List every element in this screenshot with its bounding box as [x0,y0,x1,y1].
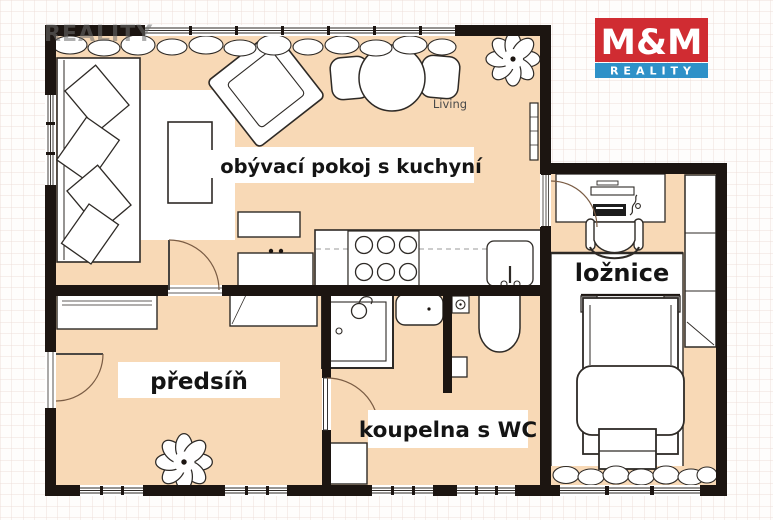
toilet [479,294,520,352]
bedroom-label: ložnice [575,259,670,287]
plant-icon-hall [156,434,213,491]
hallway-label: předsíň [150,369,248,395]
label-living-room: obývací pokoj s kuchyní [220,147,483,183]
floorplan-drawing: obývací pokoj s kuchyní předsíň koupelna… [0,0,773,520]
floorplan-page: obývací pokoj s kuchyní předsíň koupelna… [0,0,773,520]
desk [556,174,665,222]
kitchen-counter [315,230,548,288]
coffee-table [168,122,214,203]
window-wc [457,485,515,496]
radiator [530,103,538,160]
window-hall-2 [225,485,287,496]
label-hallway: předsíň [118,362,280,398]
window-top [145,25,455,36]
stove [348,231,419,287]
kitchen-sink [487,241,533,287]
bedroom-wardrobe [685,175,716,347]
low-cabinet [238,249,313,288]
bed [577,295,684,469]
toilet-paper-holder [450,357,467,377]
dining-annotation: Living [433,97,467,111]
keyboard [593,204,626,216]
tv-sideboard [238,212,300,237]
window-hall-1 [80,485,143,496]
sofa [57,58,140,264]
bed-bench [599,429,656,469]
floor-drain [452,296,469,313]
living-room-label: obývací pokoj s kuchyní [220,155,483,178]
mm-reality-logo: M&M REALITY [595,18,708,78]
logo-reality-text: REALITY [610,65,696,78]
window-left [45,95,56,185]
hall-wardrobe-left [57,293,157,329]
bath-cabinet [328,443,367,484]
label-bathroom: koupelna s WC [359,410,537,448]
mouse [636,204,641,209]
window-bedroom [560,485,700,496]
logo-mm-text: M&M [601,23,703,63]
bathroom-label: koupelna s WC [359,418,537,443]
hall-wardrobe-right [230,293,317,326]
shower [322,295,393,368]
window-bath [372,485,433,496]
watermark-text: REALITY [44,22,153,47]
office-chair [586,219,643,258]
duvet [577,366,684,435]
plant-icon [486,32,540,86]
washbasin [396,294,443,325]
